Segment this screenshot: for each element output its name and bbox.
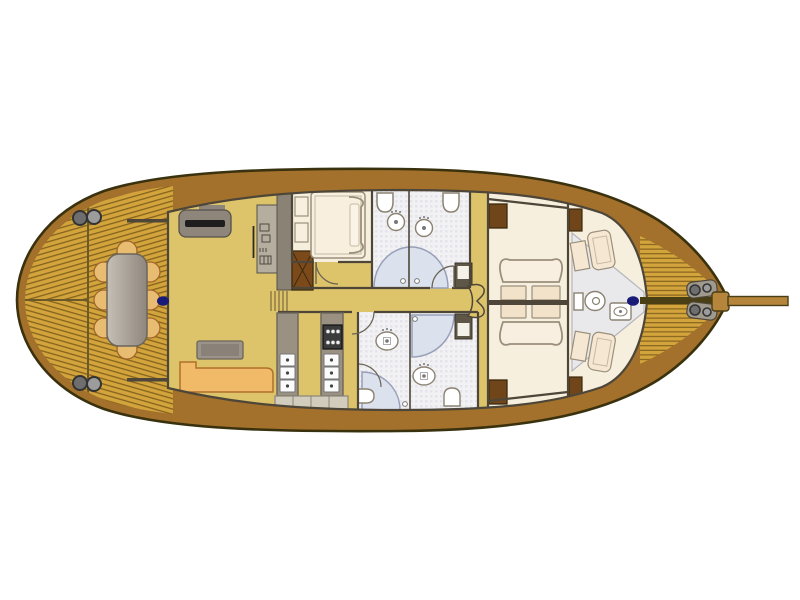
wardrobe [489,204,507,228]
deck-plan-canvas [0,0,800,600]
corridor-cupboard-inset [458,266,470,279]
galley-unit [324,380,339,392]
deck-step [127,219,168,223]
deck-step [127,378,168,382]
burner [336,330,340,334]
galley-unit [280,354,295,366]
burner [326,341,330,345]
winch-drum [73,376,87,390]
stove [323,325,342,349]
berth-cushion [532,304,560,318]
bulkhead-column [277,193,292,290]
galley-unit [280,380,295,392]
windlass-drum [703,284,711,292]
door-knob [413,317,418,322]
bowsprit [728,297,788,306]
settee-bed [500,322,562,345]
toilet [377,193,393,212]
burner [336,341,340,345]
dining-table [107,254,147,346]
sideboard-slot [185,220,225,227]
galley-unit [280,367,295,379]
door-knob [415,279,420,284]
winch-drum [87,377,101,391]
burner [331,330,335,334]
galley-unit [324,367,339,379]
windlass-drum [690,285,700,295]
windlass-drum [690,305,700,315]
salon-table-top [201,344,239,356]
burner [326,330,330,334]
burner [331,341,335,345]
settee-bed [500,259,562,282]
berth-cushion [501,304,526,318]
berth-cushion [532,286,560,300]
fore-toilet [574,292,605,311]
locker [569,209,582,231]
fore-sink [610,303,631,320]
mooring-dot [627,296,639,306]
door-knob [403,402,408,407]
bedside-table [295,223,308,242]
toilet [444,388,460,406]
winch-drum [73,211,87,225]
bow-fitting [712,292,729,311]
corridor-cupboard-inset [458,323,470,336]
double-bed-pillow [350,204,359,246]
door-knob [401,279,406,284]
interior [160,182,660,418]
yacht-deck-plan [0,0,800,600]
bedside-table [295,197,308,216]
berth-cushion [501,286,526,300]
winch-drum [87,210,101,224]
toilet [443,193,459,212]
locker-x [292,251,313,290]
galley-unit [324,354,339,366]
windlass-drum [703,308,711,316]
mooring-dot [157,296,169,306]
toilet [358,389,374,403]
